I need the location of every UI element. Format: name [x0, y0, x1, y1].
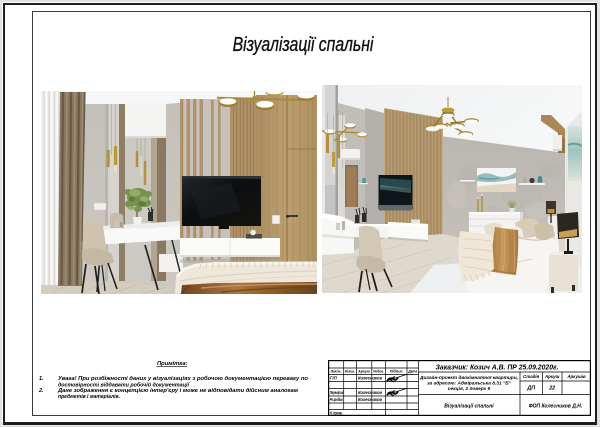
svg-text:Перевірив: Перевірив	[330, 390, 344, 395]
svg-text:Заказчик: Козич А.В. ПР 25.09.: Заказчик: Козич А.В. ПР 25.09.2020г.	[436, 364, 559, 371]
svg-text:1.: 1.	[39, 376, 44, 382]
svg-text:предметів і матеріалів.: предметів і матеріалів.	[58, 394, 120, 400]
svg-text:Розробив: Розробив	[330, 397, 343, 402]
svg-text:Колесников: Колесников	[358, 375, 382, 380]
svg-text:Стадія: Стадія	[523, 374, 539, 379]
svg-text:Аркушів: Аркушів	[566, 374, 586, 379]
svg-text:Дата: Дата	[407, 368, 418, 373]
svg-text:Аркуш: Аркуш	[357, 368, 370, 373]
svg-text:Колесников: Колесников	[358, 397, 382, 402]
svg-text:22: 22	[548, 385, 555, 391]
svg-text:Дизайн-проект двокімнатної ква: Дизайн-проект двокімнатної квартири,	[419, 374, 518, 381]
svg-text:ГІП: ГІП	[330, 375, 338, 380]
svg-text:Н. Контр.: Н. Контр.	[330, 410, 343, 415]
svg-text:за адресою: Адміральська 8.31: за адресою: Адміральська 8.31 "Б"	[427, 380, 512, 386]
svg-text:секція, 2 поверх 9: секція, 2 поверх 9	[448, 386, 491, 392]
svg-text:ДП: ДП	[526, 385, 535, 391]
svg-text:Примітка:: Примітка:	[157, 361, 188, 367]
svg-text:Змін.: Змін.	[330, 368, 341, 373]
svg-text:Увага! При розбіжності даних у: Увага! При розбіжності даних у візуаліза…	[58, 375, 309, 382]
svg-text:Аркуш: Аркуш	[544, 374, 560, 379]
svg-text:ФОП Колесников Д.Н.: ФОП Колесников Д.Н.	[529, 403, 582, 409]
svg-text:Візуалізації спальні: Візуалізації спальні	[444, 403, 494, 409]
svg-text:Дане зображення є концепцією і: Дане зображення є концепцією інтер'єру і…	[57, 387, 298, 394]
svg-text:Кільк.: Кільк.	[345, 368, 356, 373]
svg-text:2.: 2.	[38, 388, 44, 394]
svg-text:Колесников: Колесников	[358, 390, 382, 395]
svg-text:Підпис: Підпис	[390, 368, 404, 373]
svg-text:№док.: №док.	[373, 368, 384, 373]
